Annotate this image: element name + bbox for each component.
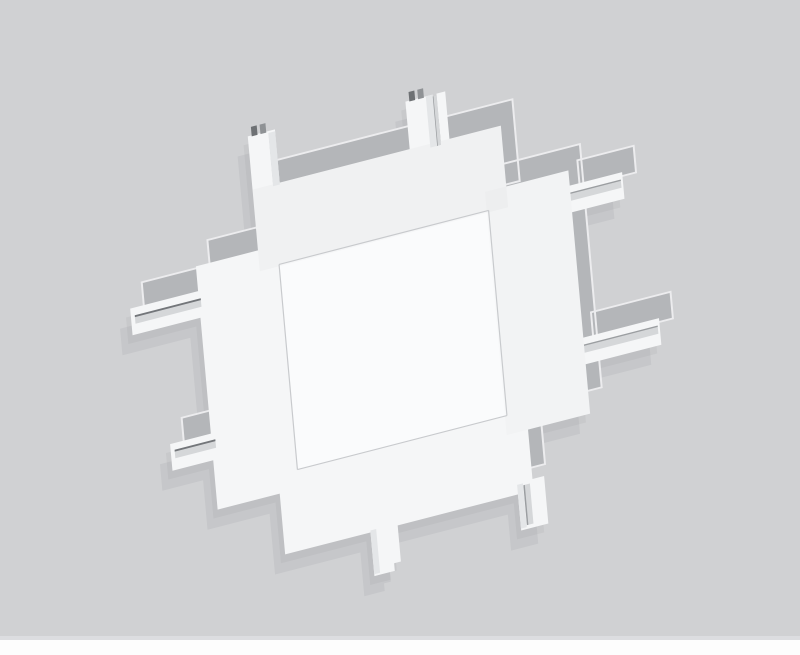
- pin-right-b: [417, 88, 424, 99]
- product-photo-stage: White cross-shaped track lighting connec…: [0, 0, 800, 655]
- product-photo: White cross-shaped track lighting connec…: [0, 0, 800, 655]
- pin-left-b: [260, 123, 267, 134]
- backdrop-white-strip: [0, 640, 800, 655]
- pin-left-a: [251, 125, 258, 136]
- backdrop-divider: [0, 636, 800, 640]
- pin-right-a: [409, 91, 416, 102]
